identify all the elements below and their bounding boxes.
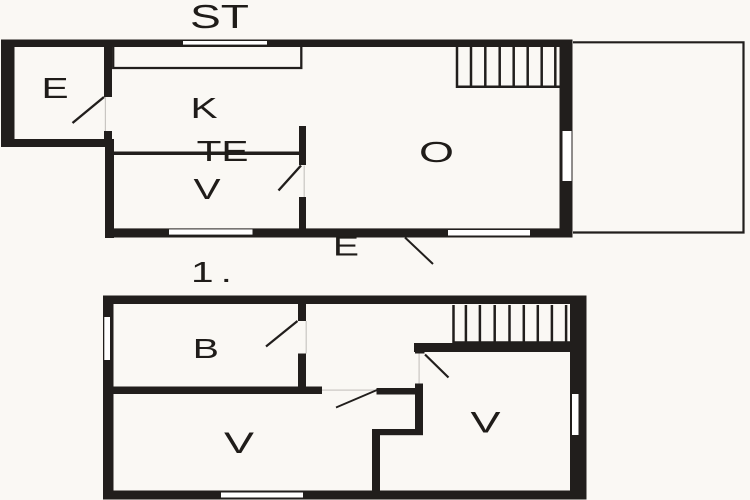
- svg-text:ST: ST: [190, 0, 249, 35]
- svg-text:V: V: [224, 426, 255, 460]
- svg-text:1.: 1.: [191, 257, 232, 289]
- svg-text:E: E: [41, 73, 68, 105]
- svg-text:E: E: [333, 231, 359, 262]
- svg-text:V: V: [470, 406, 501, 440]
- svg-text:B: B: [193, 333, 219, 364]
- svg-text:K: K: [190, 92, 218, 124]
- svg-text:O: O: [419, 136, 454, 168]
- svg-text:TE: TE: [197, 136, 249, 168]
- svg-text:V: V: [193, 174, 221, 206]
